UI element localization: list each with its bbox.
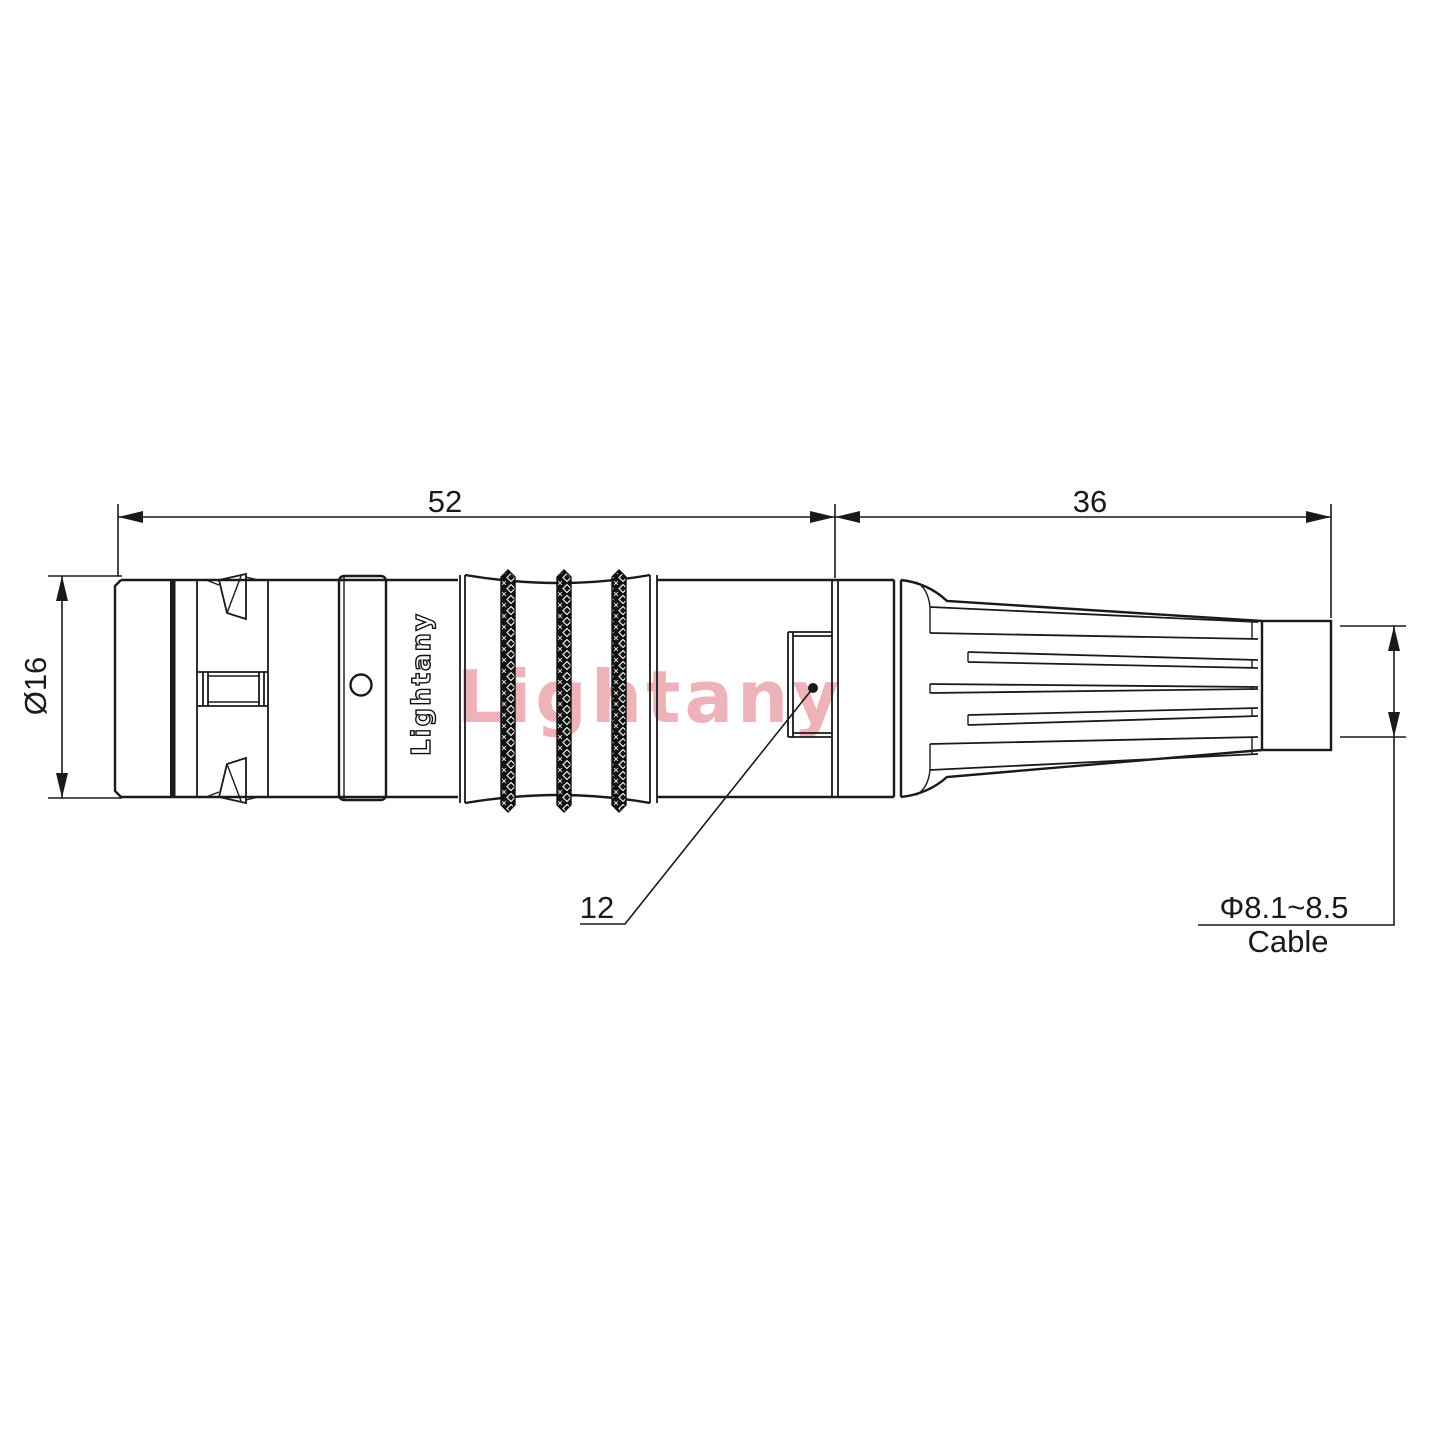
technical-drawing-page: Lightany Lightany <box>0 0 1440 1440</box>
cable-exit-sleeve <box>1262 621 1331 750</box>
keyway-slot <box>197 672 268 706</box>
boot-fins <box>930 607 1258 770</box>
connector-technical-drawing: Lightany Lightany <box>0 0 1440 1440</box>
body-marking-text: Lightany <box>407 612 437 756</box>
collar-ring <box>339 576 386 800</box>
dim-boot-length-value: 36 <box>1073 484 1107 519</box>
dim-front-diameter-value: Ø16 <box>18 657 53 716</box>
knurl-band <box>501 570 515 812</box>
collar-hole <box>351 675 372 696</box>
dim-overall-length-value: 52 <box>428 484 462 519</box>
dimension-overall-length: 52 <box>118 484 835 578</box>
dim-cable-diameter-value: Φ8.1~8.5 <box>1219 890 1348 925</box>
leader-rear-section-value: 12 <box>580 890 614 925</box>
knurl-band <box>557 570 571 812</box>
cable-label: Cable <box>1248 924 1329 959</box>
knurl-band <box>612 570 626 812</box>
strain-relief-boot <box>894 580 1331 797</box>
dimension-front-diameter: Ø16 <box>18 576 122 798</box>
dimension-boot-length: 36 <box>835 484 1331 618</box>
dimension-cable-diameter: Φ8.1~8.5 Cable <box>1198 626 1406 959</box>
